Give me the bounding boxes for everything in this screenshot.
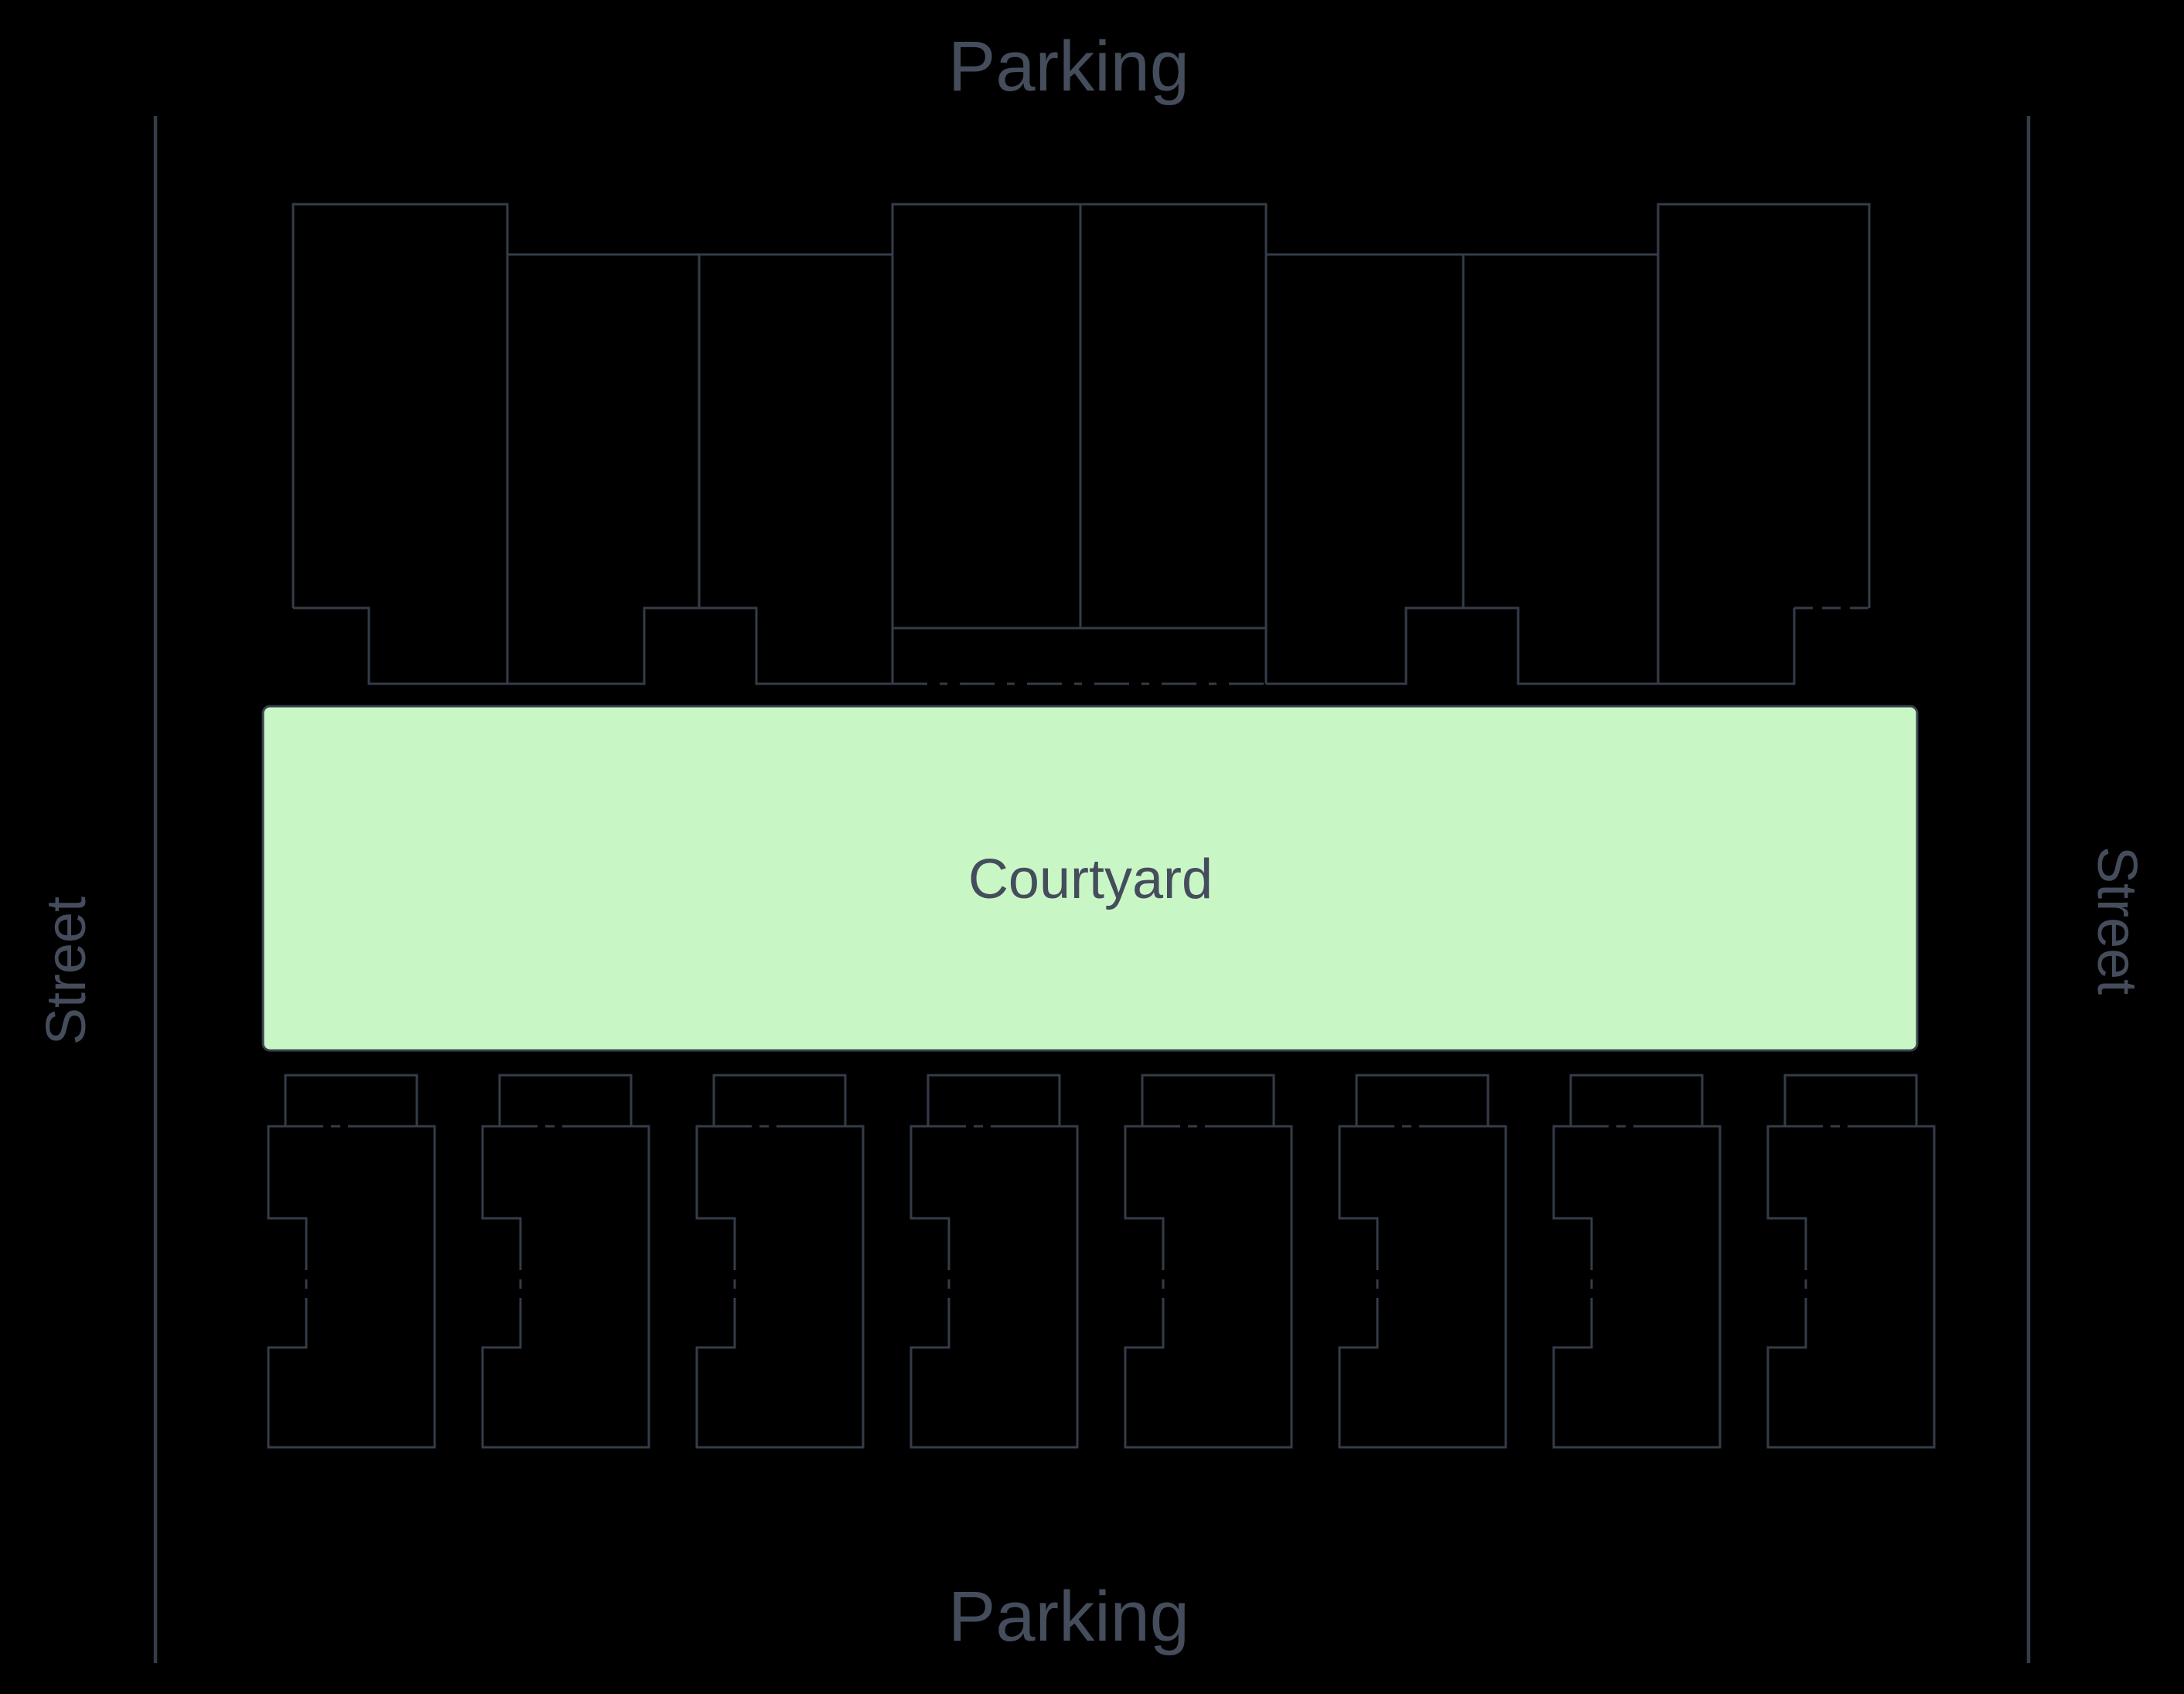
unit-body xyxy=(1768,1126,1934,1447)
door-opening-gap xyxy=(1587,1289,1596,1298)
door-opening-gap xyxy=(966,1122,974,1131)
unit-body xyxy=(483,1126,649,1447)
unit-body xyxy=(1339,1126,1506,1447)
courtyard-label: Courtyard xyxy=(968,849,1213,910)
street-label-right: Street xyxy=(2086,846,2148,995)
door-opening-gap xyxy=(1823,1122,1831,1131)
unit-body xyxy=(1554,1126,1720,1447)
door-opening-gap xyxy=(302,1270,311,1279)
unit-body xyxy=(697,1126,863,1447)
south-building-row xyxy=(268,1075,1934,1447)
door-opening-gap xyxy=(1373,1270,1382,1279)
north-building-row xyxy=(293,204,1869,684)
door-opening-gap xyxy=(1394,1122,1402,1131)
parking-label-top: Parking xyxy=(948,27,1189,106)
townhouse-unit xyxy=(1339,1075,1506,1447)
door-opening-gap xyxy=(1801,1289,1810,1298)
door-opening-gap xyxy=(323,1122,331,1131)
townhouse-unit xyxy=(1768,1075,1934,1447)
door-opening-gap xyxy=(730,1289,739,1298)
door-opening-gap xyxy=(1180,1122,1188,1131)
door-opening-gap xyxy=(1373,1289,1382,1298)
door-opening-gap xyxy=(769,1122,776,1131)
townhouse-unit xyxy=(268,1075,435,1447)
site-plan-canvas: Courtyard Parking Parking Street Street xyxy=(0,0,2184,1694)
townhouse-unit xyxy=(1554,1075,1720,1447)
townhouse-unit xyxy=(697,1075,863,1447)
door-opening-gap xyxy=(555,1122,562,1131)
unit-porch xyxy=(714,1075,845,1126)
door-opening-gap xyxy=(1411,1122,1419,1131)
townhouse-unit xyxy=(911,1075,1077,1447)
north-row-rear-wall xyxy=(293,608,1794,684)
unit-porch xyxy=(1142,1075,1274,1126)
door-opening-gap xyxy=(1159,1270,1168,1279)
door-opening-gap xyxy=(1159,1289,1168,1298)
door-opening-gap xyxy=(1609,1122,1616,1131)
door-opening-gap xyxy=(983,1122,991,1131)
door-opening-gap xyxy=(340,1122,348,1131)
door-opening-gap xyxy=(516,1270,525,1279)
door-opening-gap xyxy=(944,1270,954,1279)
unit-porch xyxy=(1785,1075,1916,1126)
unit-body xyxy=(1125,1126,1292,1447)
unit-porch xyxy=(1571,1075,1702,1126)
street-label-left: Street xyxy=(36,897,97,1045)
door-opening-gap xyxy=(1626,1122,1633,1131)
site-plan-diagram: Courtyard Parking Parking Street Street xyxy=(0,0,2184,1694)
door-opening-gap xyxy=(1197,1122,1205,1131)
unit-porch xyxy=(285,1075,417,1126)
door-opening-gap xyxy=(1840,1122,1848,1131)
unit-body xyxy=(911,1126,1077,1447)
door-opening-gap xyxy=(537,1122,545,1131)
townhouse-unit xyxy=(483,1075,649,1447)
north-row-party-walls xyxy=(507,204,1658,684)
unit-porch xyxy=(928,1075,1060,1126)
townhouse-unit xyxy=(1125,1075,1292,1447)
door-opening-gap xyxy=(1801,1270,1810,1279)
door-opening-gap xyxy=(944,1289,954,1298)
unit-body xyxy=(268,1126,435,1447)
door-opening-gap xyxy=(516,1289,525,1298)
door-opening-gap xyxy=(1587,1270,1596,1279)
parking-label-bottom: Parking xyxy=(948,1577,1189,1656)
unit-porch xyxy=(1356,1075,1488,1126)
door-opening-gap xyxy=(752,1122,759,1131)
door-opening-gap xyxy=(730,1270,739,1279)
unit-porch xyxy=(500,1075,631,1126)
door-opening-gap xyxy=(302,1289,311,1298)
